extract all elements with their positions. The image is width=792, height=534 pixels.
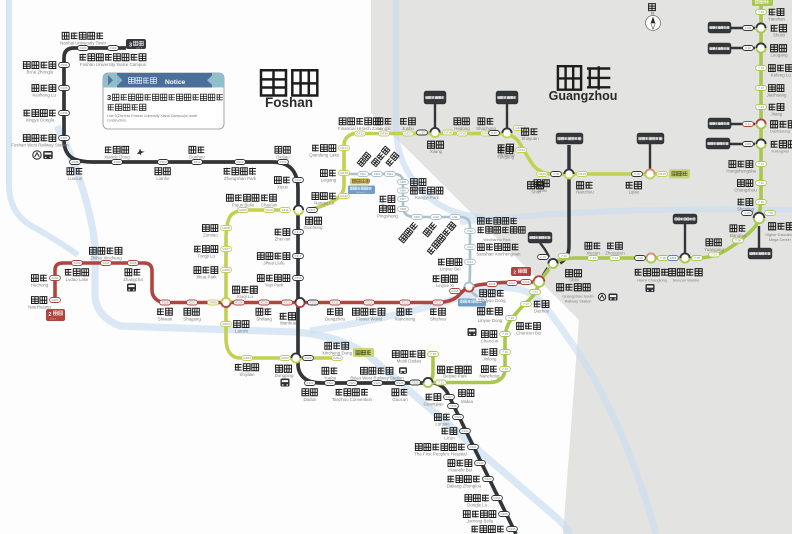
- svg-text:F323: F323: [349, 381, 356, 385]
- svg-text:GF15: GF15: [356, 132, 364, 136]
- svg-text:F211: F211: [332, 301, 339, 305]
- svg-text:Zumiao: Zumiao: [203, 233, 218, 238]
- svg-text:F313: F313: [280, 160, 287, 164]
- svg-text:F324: F324: [374, 381, 381, 385]
- svg-text:Sanshan Xinchengnan: Sanshan Xinchengnan: [476, 252, 521, 257]
- svg-text:GF02: GF02: [281, 356, 289, 360]
- svg-text:F305: F305: [61, 86, 68, 90]
- svg-text:1309: 1309: [745, 142, 752, 146]
- svg-text:Lunjiao: Lunjiao: [435, 422, 450, 427]
- svg-text:F201: F201: [52, 298, 59, 302]
- svg-text:7 07: 7 07: [711, 253, 717, 257]
- svg-text:Guangzhou: Guangzhou: [549, 89, 618, 103]
- svg-text:Railway Station: Railway Station: [565, 299, 592, 304]
- svg-text:F205: F205: [130, 261, 137, 265]
- svg-text:Lianhe: Lianhe: [156, 176, 170, 181]
- svg-text:Jihua Liulu: Jihua Liulu: [263, 261, 285, 266]
- svg-text:Nanhai University Town: Nanhai University Town: [60, 40, 106, 45]
- svg-text:Xiyue: Xiyue: [277, 185, 289, 190]
- svg-text:F317: F317: [295, 254, 302, 258]
- svg-text:GF12: GF12: [340, 194, 348, 198]
- svg-text:3 06: 3 06: [634, 172, 640, 176]
- svg-text:Shuixi: Shuixi: [773, 33, 785, 38]
- svg-text:Dunhou: Dunhou: [189, 154, 205, 159]
- svg-text:F207: F207: [189, 301, 196, 305]
- svg-text:F327: F327: [446, 395, 453, 399]
- svg-text:N10: N10: [433, 215, 439, 219]
- svg-text:Jihua Park: Jihua Park: [196, 275, 218, 280]
- svg-text:Zhongshan Park: Zhongshan Park: [224, 176, 257, 181]
- svg-text:7 16: 7 16: [758, 105, 764, 109]
- svg-text:Nancun Wanbo: Nancun Wanbo: [673, 278, 700, 283]
- svg-text:Kesheng Lu: Kesheng Lu: [32, 93, 56, 98]
- svg-text:F216: F216: [489, 282, 496, 286]
- svg-text:F218: F218: [523, 280, 530, 284]
- svg-text:Yuebu: Yuebu: [324, 375, 337, 380]
- svg-text:Wanhua: Wanhua: [280, 321, 297, 326]
- svg-text:4 10: 4 10: [744, 211, 750, 215]
- svg-text:F209: F209: [261, 301, 268, 305]
- svg-text:Lvdao Lake: Lvdao Lake: [66, 277, 89, 282]
- svg-text:F332: F332: [477, 461, 484, 465]
- svg-text:Dazhou: Dazhou: [534, 309, 550, 314]
- svg-text:Banqiao: Banqiao: [730, 233, 747, 238]
- svg-text:F210: F210: [284, 301, 291, 305]
- svg-text:Chencun: Chencun: [481, 339, 499, 344]
- svg-text:Guangjiao: Guangjiao: [423, 402, 444, 407]
- svg-text:Lanshi: Lanshi: [235, 329, 248, 334]
- svg-text:F328: F328: [450, 404, 457, 408]
- svg-text:Yayi Park: Yayi Park: [265, 283, 284, 288]
- svg-text:Dongle Lu: Dongle Lu: [467, 503, 488, 508]
- svg-text:2: 2: [514, 269, 517, 274]
- svg-text:Shijilian: Shijilian: [239, 372, 255, 377]
- svg-text:N12: N12: [467, 229, 473, 233]
- svg-text:Dengzhou: Dengzhou: [325, 317, 346, 322]
- svg-text:Nanchong: Nanchong: [479, 374, 500, 379]
- svg-text:7 18: 7 18: [758, 66, 764, 70]
- svg-text:7 20: 7 20: [430, 352, 436, 356]
- svg-text:Linyue Bei: Linyue Bei: [440, 267, 461, 272]
- svg-text:F331: F331: [470, 445, 477, 449]
- svg-text:Guicheng: Guicheng: [304, 225, 323, 230]
- svg-text:3 02: 3 02: [637, 256, 643, 260]
- svg-text:Xianchong: Xianchong: [395, 317, 416, 322]
- svg-text:2: 2: [49, 312, 52, 318]
- svg-text:F212: F212: [366, 301, 373, 305]
- svg-text:F204: F204: [103, 261, 110, 265]
- svg-text:Xiaode Dong: Xiaode Dong: [104, 154, 130, 159]
- svg-text:Luocun: Luocun: [68, 176, 83, 181]
- svg-text:7 26: 7 26: [508, 316, 514, 320]
- svg-text:7 04: 7 04: [612, 256, 618, 260]
- svg-text:Flower World: Flower World: [356, 317, 382, 322]
- svg-text:Kuiqi Lu: Kuiqi Lu: [237, 294, 253, 299]
- svg-text:F318: F318: [295, 276, 302, 280]
- svg-text:F314: F314: [295, 178, 302, 182]
- svg-text:Shagang: Shagang: [183, 317, 201, 322]
- svg-text:Wenhanhu Park: Wenhanhu Park: [483, 238, 510, 242]
- svg-text:Zhihui Xincheng: Zhihui Xincheng: [90, 255, 122, 260]
- svg-text:F330: F330: [462, 429, 469, 433]
- svg-text:Line 3: Line 3: [136, 47, 143, 49]
- svg-text:F326: F326: [412, 381, 419, 385]
- svg-text:GF01: GF01: [333, 356, 341, 360]
- svg-text:Shiliang: Shiliang: [256, 317, 272, 322]
- svg-text:GF10: GF10: [265, 208, 273, 212]
- svg-text:2103: 2103: [745, 26, 752, 30]
- svg-text:Shayuan: Shayuan: [521, 136, 539, 141]
- svg-text:2 08: 2 08: [553, 172, 559, 176]
- svg-text:F320: F320: [305, 356, 312, 360]
- svg-text:7 12: 7 12: [758, 162, 764, 166]
- svg-text:Foshan West Railway Station: Foshan West Railway Station: [11, 143, 69, 148]
- svg-text:Notice: Notice: [165, 79, 185, 86]
- svg-text:7 10: 7 10: [758, 200, 764, 204]
- svg-text:Midea: Midea: [461, 399, 474, 404]
- svg-text:F303: F303: [80, 46, 87, 50]
- svg-text:7 25: 7 25: [502, 332, 508, 336]
- svg-text:3: 3: [129, 43, 132, 49]
- svg-text:Licun: Licun: [444, 436, 455, 441]
- svg-text:GF19: GF19: [458, 132, 466, 136]
- svg-text:F208: F208: [236, 301, 243, 305]
- svg-text:Line 3(Zhen'an-Foshan Universi: Line 3(Zhen'an-Foshan University Xianxi …: [107, 114, 198, 118]
- svg-text:N: N: [651, 12, 654, 16]
- svg-text:F311: F311: [194, 160, 201, 164]
- svg-text:Jitang: Jitang: [771, 112, 783, 117]
- svg-text:GF03: GF03: [243, 356, 251, 360]
- svg-text:Linyue Xi: Linyue Xi: [436, 283, 454, 288]
- svg-text:F325: F325: [397, 381, 404, 385]
- svg-text:GF08: GF08: [222, 226, 230, 230]
- svg-text:7 02: 7 02: [561, 254, 567, 258]
- svg-text:7 05: 7 05: [660, 256, 666, 260]
- svg-text:Tanzhou Convention: Tanzhou Convention: [332, 397, 373, 402]
- svg-text:F306: F306: [61, 111, 68, 115]
- svg-text:F310: F310: [160, 160, 167, 164]
- svg-text:Gaocun: Gaocun: [392, 397, 408, 402]
- svg-text:Zhongcun: Zhongcun: [605, 250, 625, 255]
- svg-text:construction.: construction.: [107, 119, 127, 123]
- svg-text:Pujun Beilu: Pujun Beilu: [232, 202, 255, 207]
- svg-text:Lijiao: Lijiao: [629, 190, 640, 195]
- svg-text:Jiazhuang: Jiazhuang: [766, 93, 787, 98]
- svg-text:Line 2: Line 2: [50, 319, 57, 321]
- svg-text:Hedong: Hedong: [454, 126, 470, 131]
- svg-text:GF24: GF24: [578, 172, 586, 176]
- svg-text:Pingsheng: Pingsheng: [377, 214, 398, 219]
- svg-text:Dadun: Dadun: [304, 397, 317, 402]
- svg-text:F308: F308: [72, 160, 79, 164]
- svg-text:F302: F302: [110, 46, 117, 50]
- svg-text:Foshan University Xianxi Campu: Foshan University Xianxi Campus: [80, 62, 147, 67]
- svg-text:GF16: GF16: [380, 132, 388, 136]
- svg-text:7 26: 7 26: [758, 10, 764, 14]
- svg-text:GF17: GF17: [404, 132, 412, 136]
- svg-text:Linyue Dong: Linyue Dong: [478, 318, 503, 323]
- svg-text:Leigang: Leigang: [321, 178, 337, 183]
- svg-text:Zhen'an: Zhen'an: [275, 237, 291, 242]
- svg-text:N08: N08: [400, 207, 406, 211]
- svg-text:Daliang Zhonglou: Daliang Zhonglou: [447, 484, 482, 489]
- svg-text:F203: F203: [74, 261, 81, 265]
- svg-text:F206: F206: [162, 301, 169, 305]
- svg-text:6 32: 6 32: [745, 46, 751, 50]
- svg-text:Nangui Lu: Nangui Lu: [314, 201, 335, 206]
- svg-text:Changzhou: Changzhou: [734, 188, 757, 193]
- svg-text:Huchong: Huchong: [31, 283, 49, 288]
- svg-text:8 25: 8 25: [491, 131, 497, 135]
- svg-text:F202: F202: [52, 276, 59, 280]
- svg-text:Meidi Dadao: Meidi Dadao: [397, 359, 422, 364]
- svg-text:Chencun Bei: Chencun Bei: [516, 331, 541, 336]
- svg-text:F215: F215: [452, 289, 459, 293]
- svg-text:N13: N13: [467, 245, 473, 249]
- svg-text:Financial Hi-tech Zone: Financial Hi-tech Zone: [338, 126, 382, 131]
- svg-text:N06: N06: [400, 189, 406, 193]
- svg-text:7 23: 7 23: [502, 367, 508, 371]
- svg-text:GF06: GF06: [222, 268, 230, 272]
- svg-text:Higher Education: Higher Education: [765, 233, 792, 237]
- svg-text:Mega Center: Mega Center: [769, 238, 792, 242]
- svg-text:N04: N04: [387, 172, 393, 176]
- svg-text:Xilang: Xilang: [430, 149, 443, 154]
- svg-text:Lingyue Dong: Lingyue Dong: [478, 298, 506, 303]
- svg-text:Shixi: Shixi: [531, 190, 541, 195]
- svg-text:Nanzhuang: Nanzhuang: [28, 305, 51, 310]
- svg-text:Tongji Lu: Tongji Lu: [197, 254, 215, 259]
- svg-text:Xingye Donglu: Xingye Donglu: [26, 118, 55, 123]
- svg-text:GF14: GF14: [340, 146, 348, 150]
- svg-text:Shiwan: Shiwan: [158, 317, 173, 322]
- svg-text:F307: F307: [61, 136, 68, 140]
- svg-text:F312: F312: [237, 160, 244, 164]
- svg-text:The First People's Hospital: The First People's Hospital: [414, 452, 466, 457]
- svg-text:F217: F217: [509, 281, 516, 285]
- svg-text:Dongping: Dongping: [275, 373, 294, 378]
- svg-text:Chao'an: Chao'an: [261, 202, 278, 207]
- svg-text:N14: N14: [467, 260, 473, 264]
- svg-text:Huanshi Bei: Huanshi Bei: [448, 468, 472, 473]
- svg-text:F333: F333: [485, 477, 492, 481]
- svg-text:GF07: GF07: [222, 247, 230, 251]
- svg-text:Junrong Beilu: Junrong Beilu: [466, 519, 493, 524]
- svg-text:N07: N07: [400, 197, 406, 201]
- svg-text:Zhangcha: Zhangcha: [123, 277, 143, 282]
- svg-text:Hanxi Changlong: Hanxi Changlong: [637, 278, 667, 283]
- svg-text:Dashadong: Dashadong: [770, 129, 790, 134]
- svg-text:F329: F329: [455, 415, 462, 419]
- svg-text:2 16: 2 16: [540, 255, 546, 259]
- svg-text:F315: F315: [309, 208, 316, 212]
- svg-text:5 31: 5 31: [745, 122, 751, 126]
- svg-text:Diejiao: Diejiao: [276, 154, 290, 159]
- svg-text:Xiecun: Xiecun: [586, 250, 600, 255]
- svg-text:GF22: GF22: [517, 148, 525, 152]
- svg-text:N09: N09: [414, 215, 420, 219]
- svg-text:Jinlong: Jinlong: [483, 357, 497, 362]
- svg-text:Yufengwei: Yufengwei: [771, 149, 789, 154]
- svg-text:GF13: GF13: [340, 171, 348, 175]
- svg-text:GF09: GF09: [239, 208, 247, 212]
- svg-text:Kefeng Lu: Kefeng Lu: [771, 73, 792, 78]
- svg-text:N03: N03: [374, 172, 380, 176]
- svg-text:7 27: 7 27: [523, 302, 529, 306]
- svg-text:7 08: 7 08: [735, 239, 741, 243]
- svg-text:7 01: 7 01: [532, 290, 538, 294]
- svg-text:1804: 1804: [670, 256, 677, 260]
- svg-text:F335: F335: [501, 512, 508, 516]
- svg-text:F322: F322: [327, 381, 334, 385]
- svg-text:7 09: 7 09: [767, 211, 773, 215]
- svg-text:F316: F316: [295, 230, 302, 234]
- svg-text:1 65: 1 65: [419, 131, 425, 135]
- svg-text:F334: F334: [494, 496, 501, 500]
- svg-text:Hongshengsha: Hongshengsha: [726, 169, 756, 174]
- svg-text:N11: N11: [452, 215, 458, 219]
- svg-text:3: 3: [107, 93, 111, 102]
- svg-text:Kangyi Park: Kangyi Park: [415, 195, 439, 200]
- svg-text:GF11: GF11: [281, 208, 289, 212]
- svg-text:GF05: GF05: [209, 301, 217, 305]
- svg-text:7 17: 7 17: [758, 86, 764, 90]
- svg-text:Yanshan: Yanshan: [768, 17, 786, 22]
- svg-text:Qiandeng Lake: Qiandeng Lake: [309, 153, 339, 158]
- svg-text:F309: F309: [114, 160, 121, 164]
- svg-text:Xincheng Dong: Xincheng Dong: [322, 350, 353, 355]
- svg-text:Bo'ai Zhonglu: Bo'ai Zhonglu: [27, 70, 54, 75]
- svg-text:7 11: 7 11: [758, 181, 764, 185]
- svg-text:7 03: 7 03: [590, 256, 596, 260]
- svg-text:F214: F214: [435, 301, 442, 305]
- svg-text:7 21: 7 21: [438, 381, 444, 385]
- svg-text:F321: F321: [307, 381, 314, 385]
- svg-text:Yangang: Yangang: [497, 152, 515, 157]
- svg-text:Longxi: Longxi: [378, 126, 391, 131]
- svg-text:NH Line 1: NH Line 1: [357, 192, 367, 194]
- svg-text:N02: N02: [360, 172, 366, 176]
- svg-text:Shibi: Shibi: [569, 278, 579, 283]
- svg-text:N05: N05: [400, 180, 406, 184]
- svg-text:Shizhou: Shizhou: [430, 317, 446, 322]
- svg-text:Nanzhou: Nanzhou: [576, 190, 594, 195]
- svg-text:Jushu: Jushu: [402, 126, 414, 131]
- svg-text:7 24: 7 24: [502, 350, 508, 354]
- svg-text:Luogang: Luogang: [770, 53, 788, 58]
- svg-text:Yuangang: Yuangang: [704, 247, 724, 252]
- svg-text:Bijiao West Railway Station: Bijiao West Railway Station: [350, 375, 404, 380]
- svg-text:Beijiao Park: Beijiao Park: [443, 374, 467, 379]
- svg-text:F319: F319: [310, 301, 317, 305]
- svg-text:F336: F336: [509, 527, 516, 531]
- svg-text:GF25: GF25: [658, 172, 666, 176]
- svg-text:F213: F213: [402, 301, 409, 305]
- svg-text:F304: F304: [61, 63, 68, 67]
- svg-text:Foshan: Foshan: [265, 95, 313, 110]
- svg-text:GF04: GF04: [222, 322, 230, 326]
- svg-text:GF18: GF18: [444, 131, 452, 135]
- svg-text:7 06: 7 06: [694, 256, 700, 260]
- svg-text:GF23: GF23: [538, 172, 546, 176]
